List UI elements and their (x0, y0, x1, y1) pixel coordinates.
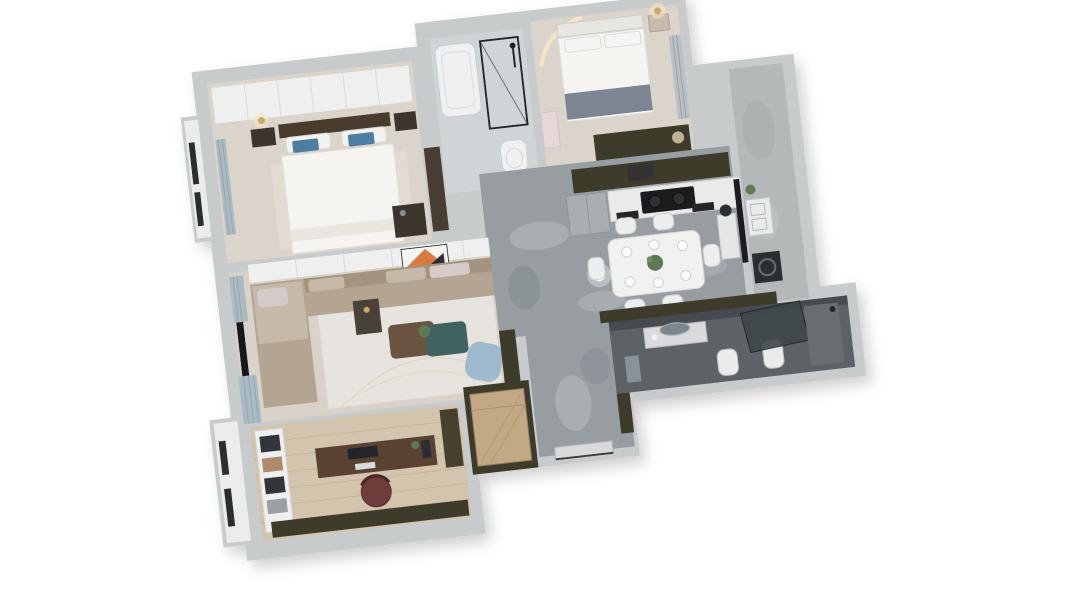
floor-plan-render (0, 0, 1080, 608)
bathtub (434, 42, 482, 118)
plate-icon (677, 240, 688, 251)
built-in-side-table (353, 298, 383, 335)
plate-icon (621, 246, 632, 257)
nightstand (394, 111, 418, 131)
plate-icon (680, 270, 691, 281)
shelf-tv (264, 476, 286, 494)
plate-icon (625, 276, 636, 287)
room-bedroom-2 (530, 1, 694, 169)
toilet (716, 348, 739, 376)
stool (625, 355, 642, 382)
floor-plan-svg (0, 0, 1080, 608)
plate-icon (649, 239, 660, 250)
shelf-box (267, 498, 288, 514)
pink-shelf (540, 111, 560, 149)
dining-chair (587, 257, 605, 281)
shelf-box (262, 456, 283, 472)
shelf-tv (259, 434, 281, 452)
dining-chair (615, 217, 637, 235)
nightstand (250, 127, 276, 148)
shower-area (804, 302, 845, 365)
range-hood-icon (627, 162, 655, 181)
plate-icon (653, 277, 664, 288)
dresser (392, 203, 427, 238)
wood-wardrobe (470, 389, 532, 467)
room-study (250, 404, 472, 541)
coffee-table-teal (424, 321, 469, 358)
dining-chair (702, 244, 720, 268)
sofa-pillow (257, 287, 289, 308)
washing-machine (752, 251, 783, 284)
dining-chair (653, 213, 675, 231)
room-master-bedroom (207, 59, 450, 263)
